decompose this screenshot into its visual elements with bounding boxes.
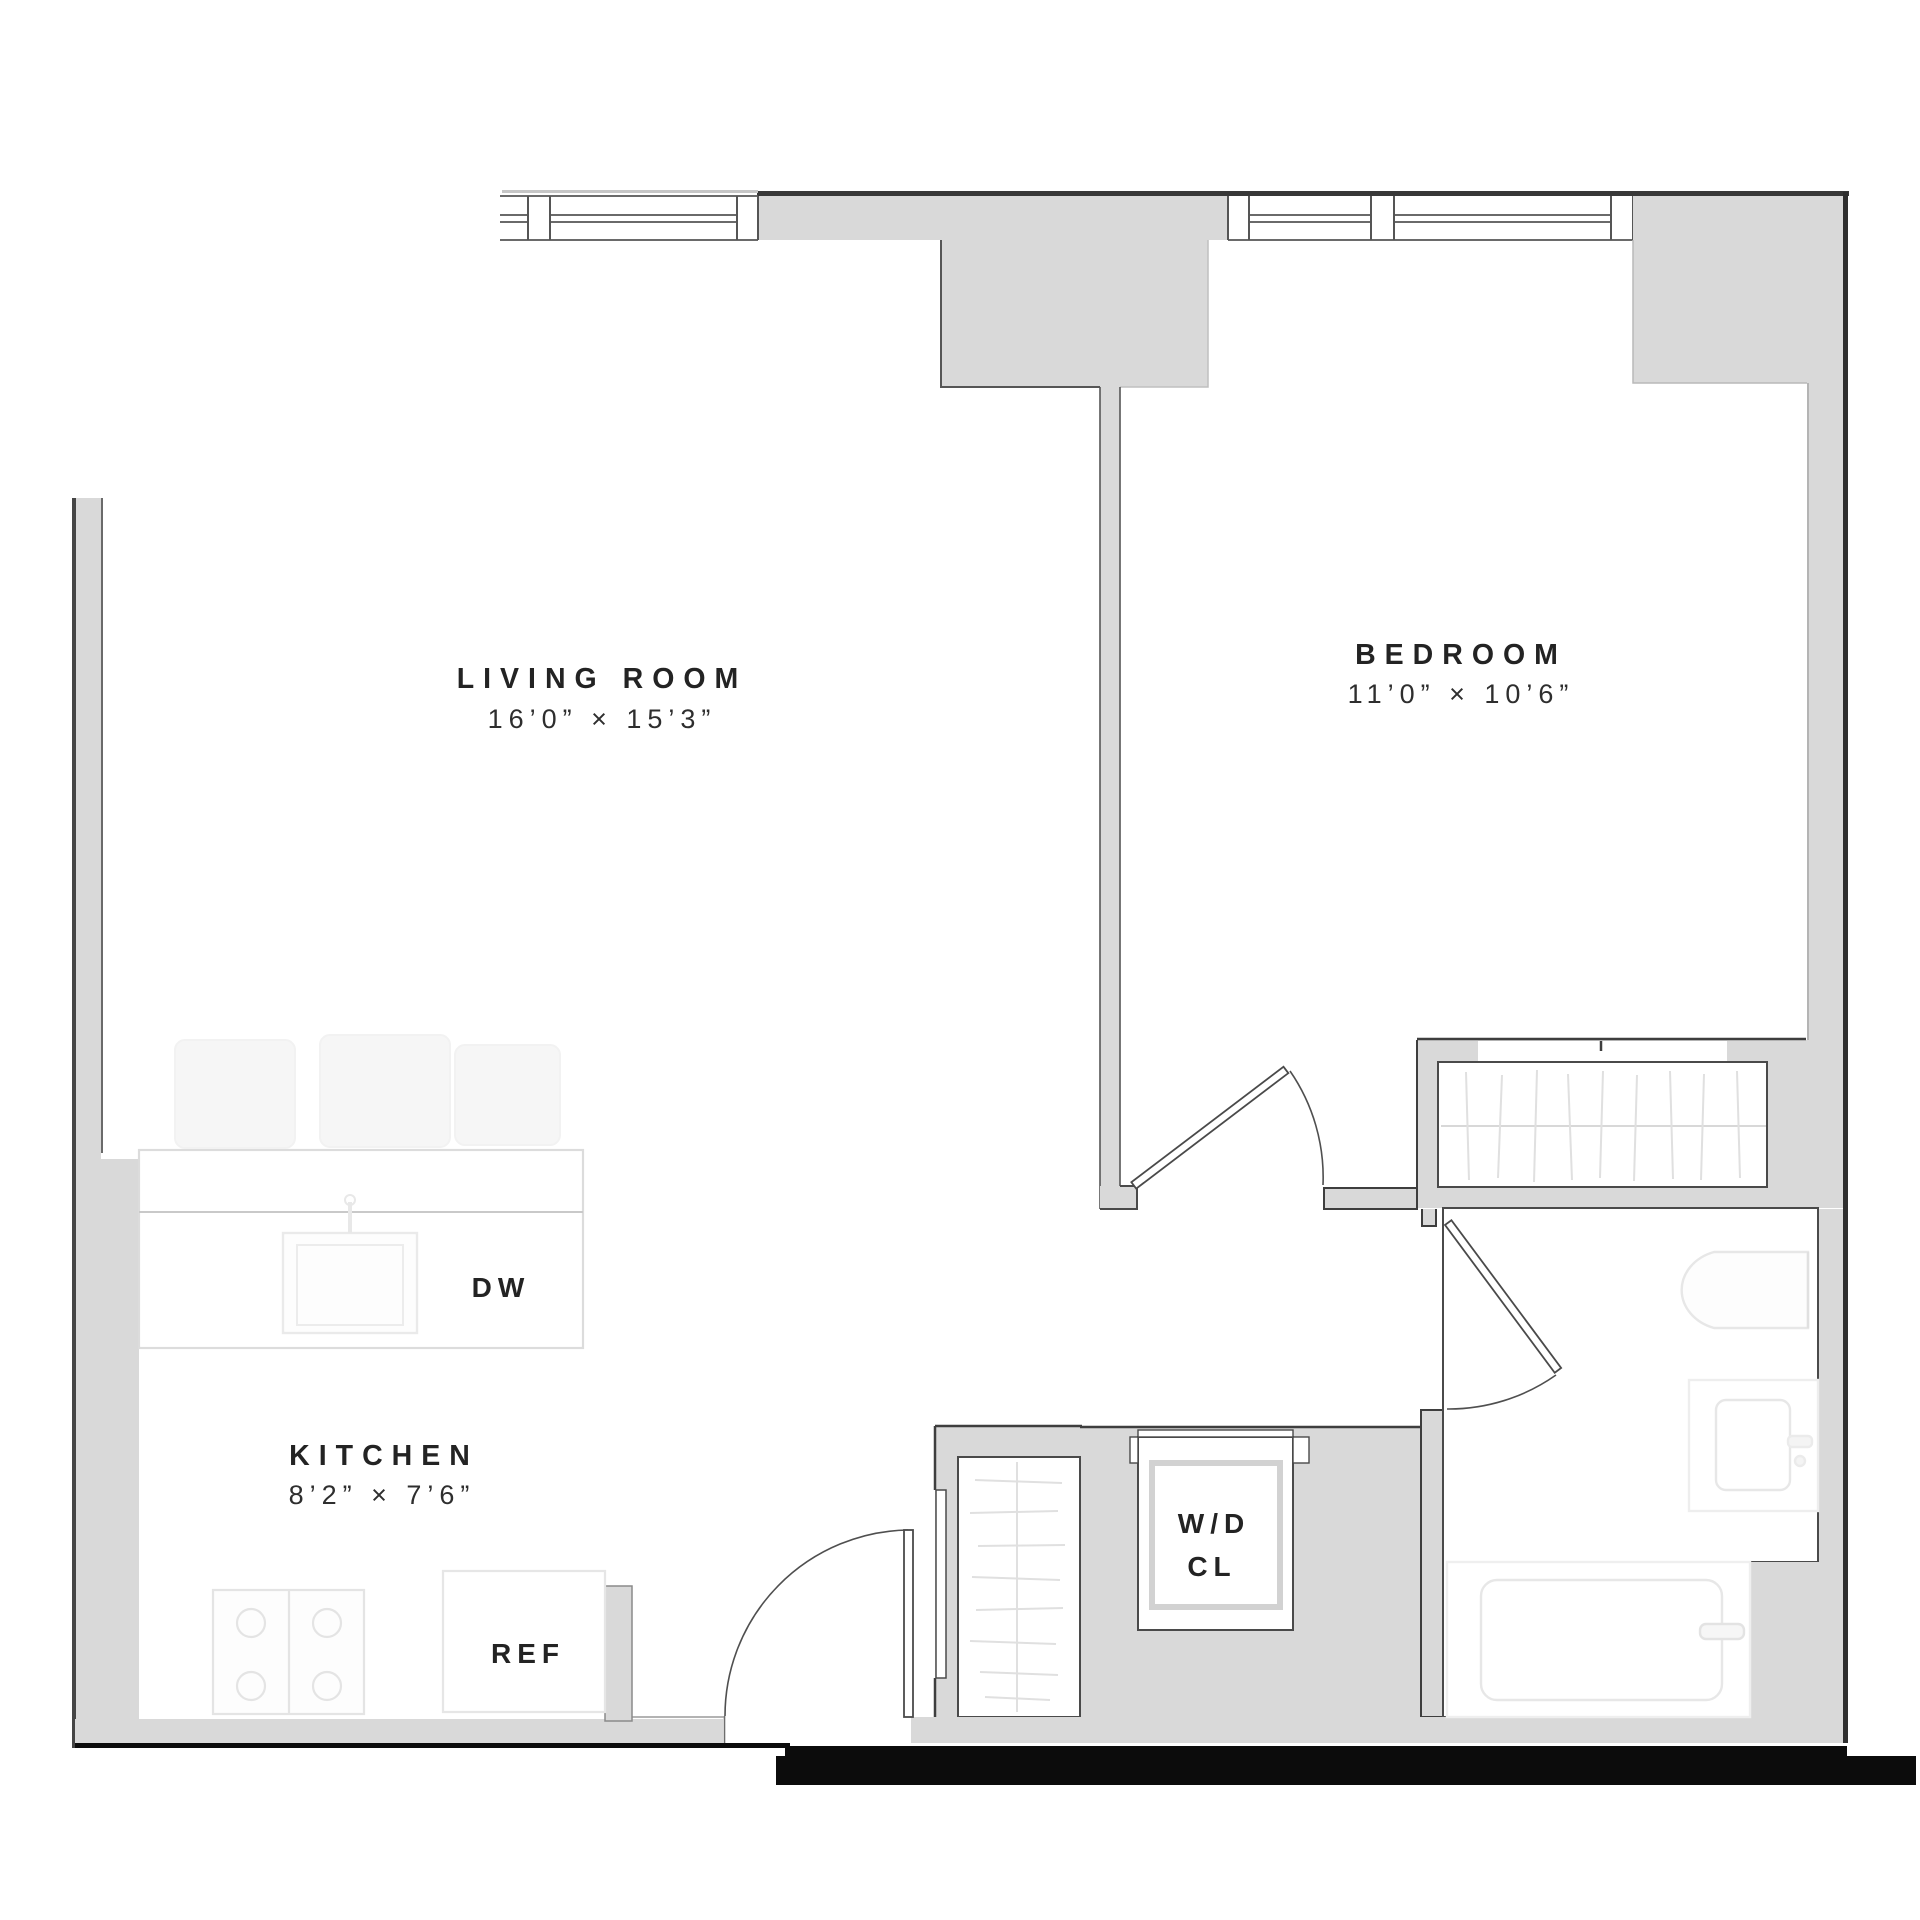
svg-text:W/D: W/D bbox=[1178, 1508, 1250, 1539]
svg-text:8’2” × 7’6”: 8’2” × 7’6” bbox=[289, 1480, 476, 1510]
svg-text:16’0” × 15’3”: 16’0” × 15’3” bbox=[488, 704, 717, 734]
svg-text:11’0” × 10’6”: 11’0” × 10’6” bbox=[1348, 679, 1575, 709]
svg-text:BEDROOM: BEDROOM bbox=[1355, 639, 1567, 671]
svg-text:DW: DW bbox=[472, 1272, 531, 1303]
svg-text:REF: REF bbox=[491, 1638, 565, 1669]
svg-text:KITCHEN: KITCHEN bbox=[289, 1440, 479, 1472]
svg-text:LIVING ROOM: LIVING ROOM bbox=[457, 663, 748, 695]
svg-text:CL: CL bbox=[1187, 1551, 1236, 1582]
